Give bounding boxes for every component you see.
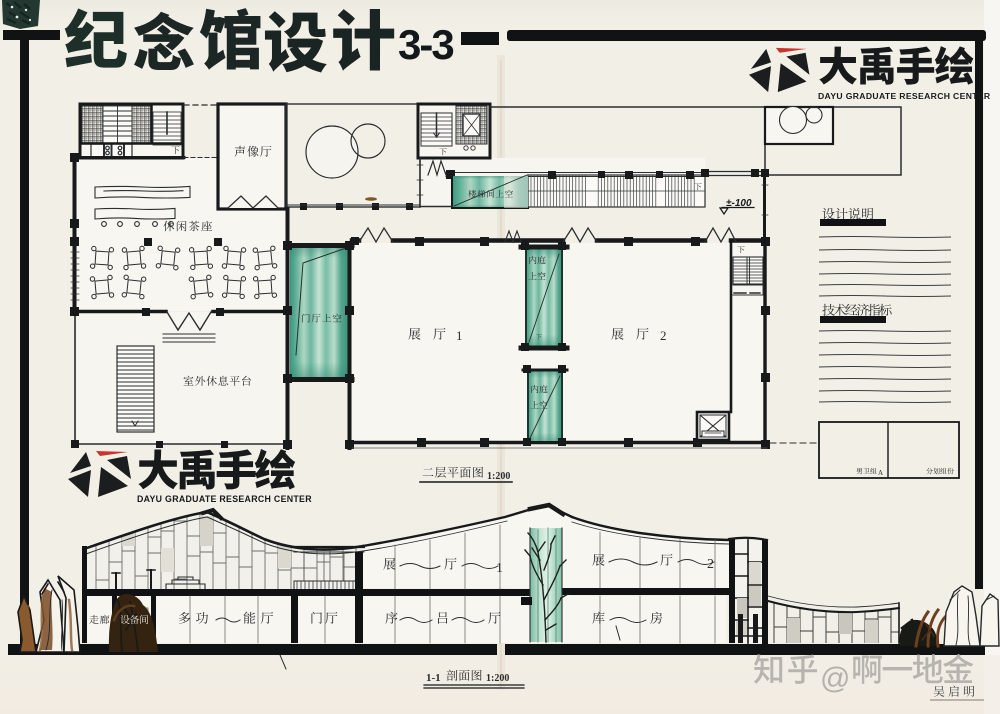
- svg-text:1:200: 1:200: [487, 471, 510, 482]
- svg-text:1: 1: [456, 328, 463, 343]
- svg-text:DAYU GRADUATE RESEARCH CENTER: DAYU GRADUATE RESEARCH CENTER: [818, 91, 991, 101]
- svg-text:2: 2: [707, 557, 714, 572]
- svg-text:A: A: [878, 469, 883, 477]
- svg-text:1: 1: [496, 561, 503, 576]
- svg-text:1-1: 1-1: [426, 672, 441, 684]
- svg-text:3-3: 3-3: [398, 21, 453, 68]
- svg-text:DAYU GRADUATE RESEARCH CENTER: DAYU GRADUATE RESEARCH CENTER: [137, 494, 312, 504]
- svg-text:@: @: [820, 662, 850, 695]
- svg-text:1:200: 1:200: [486, 673, 509, 684]
- svg-text:2: 2: [660, 328, 667, 343]
